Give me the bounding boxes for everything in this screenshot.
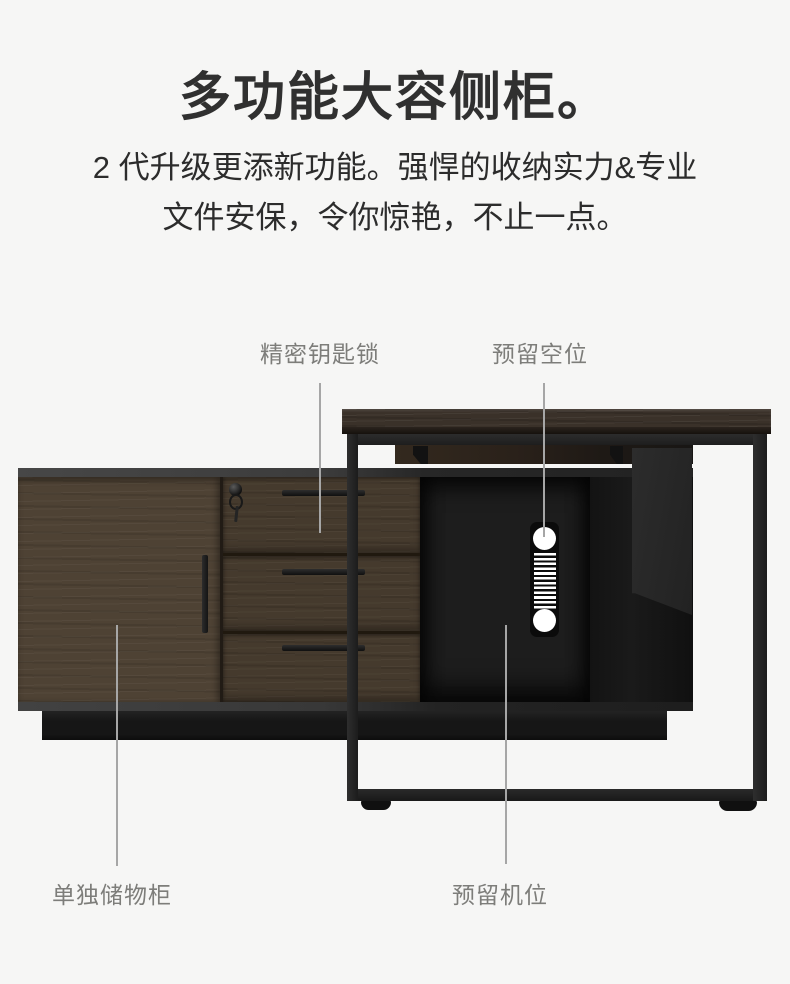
desk-foot-left [361, 800, 391, 810]
desk-frame-bottom-bar [347, 789, 767, 801]
product-detail-section: 多功能大容侧柜。 2 代升级更添新功能。强悍的收纳实力&专业 文件安保，令你惊艳… [0, 0, 790, 984]
desk-top-edge [342, 427, 771, 434]
desk-top [342, 409, 771, 427]
cabinet-door [18, 477, 223, 702]
drawer-bottom [223, 634, 420, 702]
callout-label-key-lock: 精密钥匙锁 [260, 335, 380, 369]
desk-foot-right [719, 800, 757, 811]
drawer-middle [223, 556, 420, 631]
subtitle: 2 代升级更添新功能。强悍的收纳实力&专业 文件安保，令你惊艳，不止一点。 [0, 143, 790, 243]
desk-side-panel [632, 448, 692, 615]
subtitle-line-1: 2 代升级更添新功能。强悍的收纳实力&专业 [93, 150, 698, 185]
grommet-hole-bottom [533, 609, 556, 632]
desk-frame-right-leg [753, 434, 767, 801]
callout-label-device-slot: 预留机位 [452, 876, 548, 910]
page-title: 多功能大容侧柜。 [0, 55, 790, 130]
grommet-slats [534, 553, 556, 610]
callout-line-storage-cabinet [116, 625, 118, 866]
callout-line-device-slot [505, 625, 507, 864]
desk-frame-left-leg [347, 434, 358, 801]
callout-line-reserved-space [543, 383, 545, 537]
callout-label-reserved-space: 预留空位 [492, 335, 588, 369]
door-handle [202, 555, 208, 633]
desk-frame-top-bar [347, 434, 767, 445]
drawer-top [223, 477, 420, 553]
callout-line-key-lock [319, 383, 321, 533]
drawer-unit [223, 477, 420, 702]
callout-label-storage-cabinet: 单独储物柜 [52, 876, 172, 910]
subtitle-line-2: 文件安保，令你惊艳，不止一点。 [163, 200, 628, 235]
